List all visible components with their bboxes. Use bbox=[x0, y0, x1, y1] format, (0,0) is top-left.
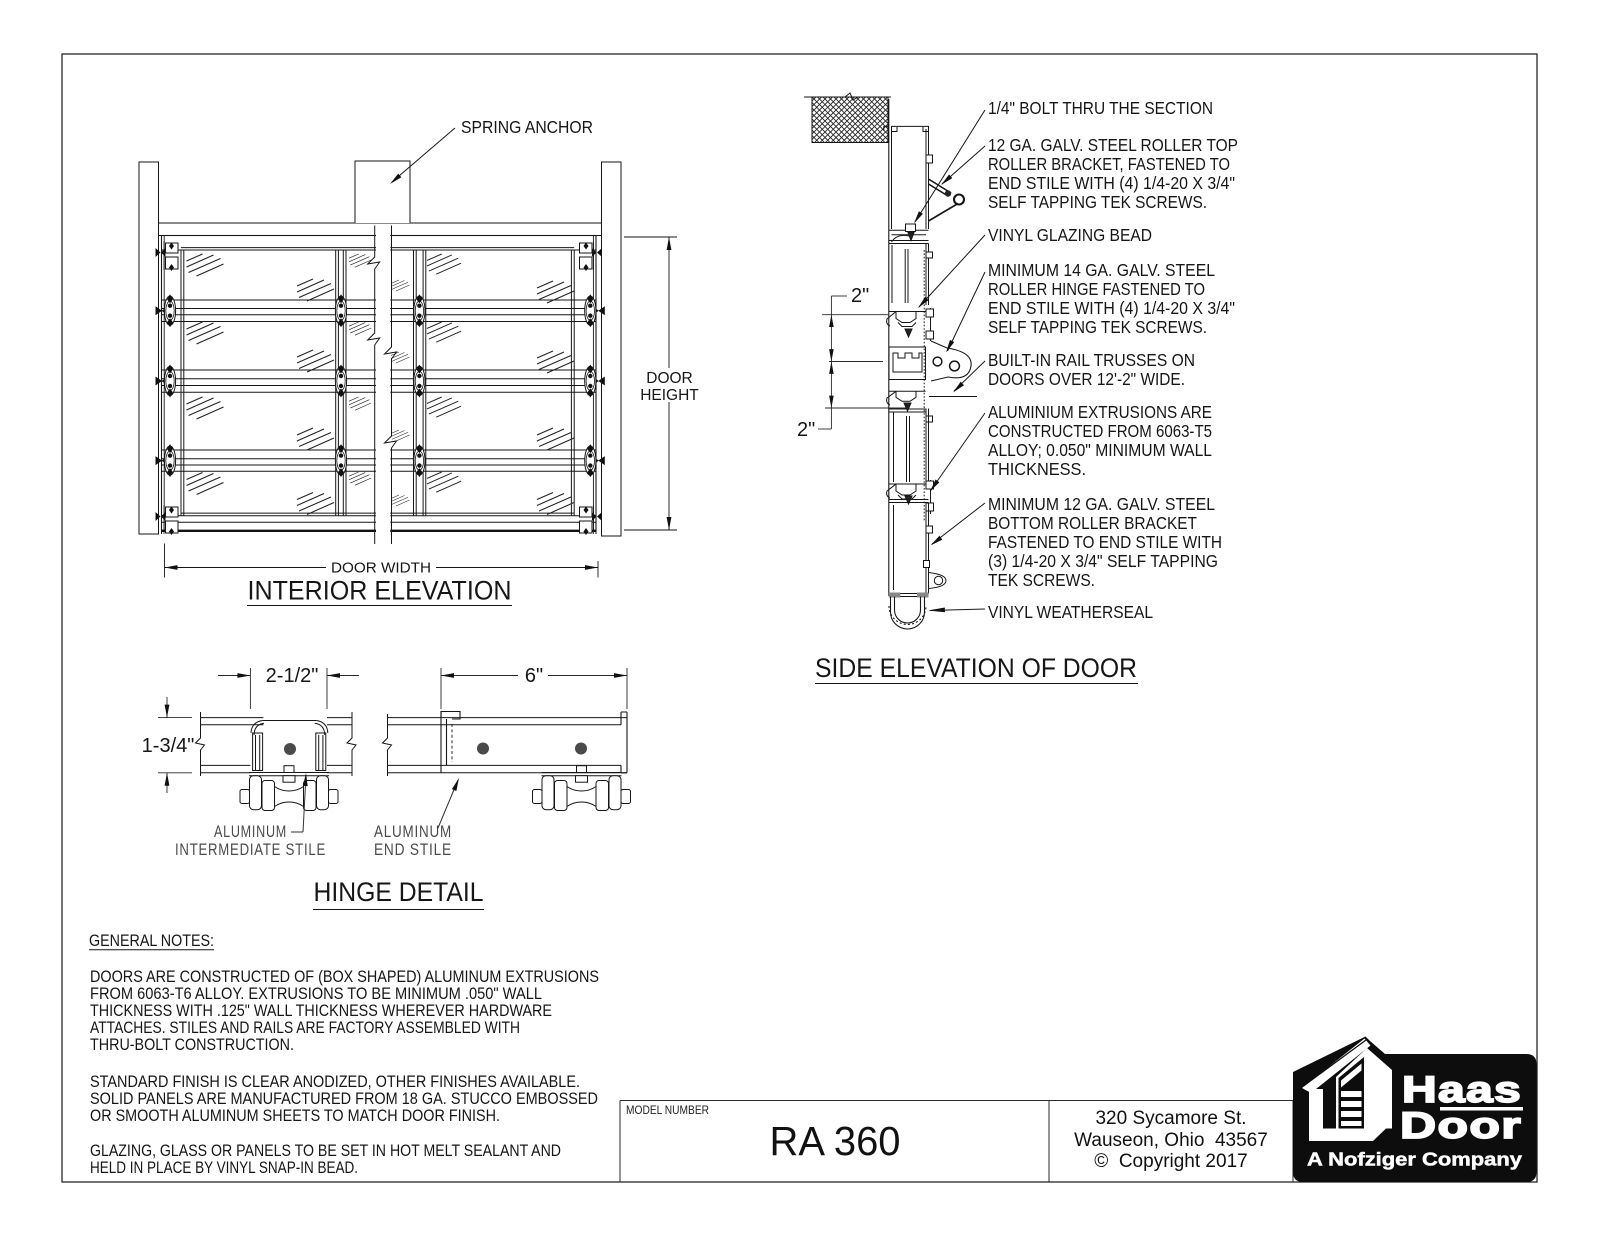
svg-text:Door: Door bbox=[1400, 1105, 1522, 1146]
svg-text:GENERAL NOTES:: GENERAL NOTES: bbox=[89, 932, 214, 950]
svg-text:HELD IN PLACE BY VINYL SNAP-IN: HELD IN PLACE BY VINYL SNAP-IN BEAD. bbox=[90, 1159, 358, 1177]
svg-text:TEK SCREWS.: TEK SCREWS. bbox=[988, 570, 1095, 590]
svg-text:MODEL NUMBER: MODEL NUMBER bbox=[626, 1105, 709, 1117]
svg-text:SELF TAPPING TEK SCREWS.: SELF TAPPING TEK SCREWS. bbox=[988, 192, 1207, 212]
svg-text:ALUMINUM: ALUMINUM bbox=[214, 822, 287, 841]
svg-text:SOLID PANELS ARE MANUFACTURED: SOLID PANELS ARE MANUFACTURED FROM 18 GA… bbox=[90, 1090, 598, 1108]
svg-text:FROM 6063-T6 ALLOY. EXTRUSION: FROM 6063-T6 ALLOY. EXTRUSIONS TO BE MIN… bbox=[90, 985, 542, 1003]
svg-text:HINGE DETAIL: HINGE DETAIL bbox=[314, 877, 484, 907]
svg-text:HEIGHT: HEIGHT bbox=[640, 387, 699, 404]
svg-text:2": 2" bbox=[797, 419, 815, 441]
svg-text:BUILT-IN RAIL TRUSSES ON: BUILT-IN RAIL TRUSSES ON bbox=[988, 350, 1195, 370]
svg-text:RA 360: RA 360 bbox=[770, 1118, 901, 1164]
svg-text:6": 6" bbox=[525, 665, 543, 687]
svg-text:Haas: Haas bbox=[1402, 1069, 1522, 1110]
svg-text:SELF TAPPING TEK SCREWS.: SELF TAPPING TEK SCREWS. bbox=[988, 317, 1207, 337]
svg-text:MINIMUM 12 GA. GALV. STEEL: MINIMUM 12 GA. GALV. STEEL bbox=[988, 494, 1215, 514]
svg-text:2": 2" bbox=[851, 285, 869, 307]
svg-text:END STILE: END STILE bbox=[374, 840, 452, 859]
svg-text:1/4" BOLT THRU THE SECTION: 1/4" BOLT THRU THE SECTION bbox=[988, 98, 1213, 118]
svg-text:VINYL WEATHERSEAL: VINYL WEATHERSEAL bbox=[988, 602, 1153, 622]
svg-text:OR SMOOTH ALUMINUM SHEETS TO M: OR SMOOTH ALUMINUM SHEETS TO MATCH DOOR … bbox=[90, 1107, 500, 1125]
svg-text:Wauseon, Ohio 43567: Wauseon, Ohio 43567 bbox=[1074, 1130, 1268, 1151]
svg-text:INTERMEDIATE STILE: INTERMEDIATE STILE bbox=[175, 840, 326, 859]
svg-text:CONSTRUCTED FROM 6063-T5: CONSTRUCTED FROM 6063-T5 bbox=[988, 421, 1212, 441]
svg-text:SPRING ANCHOR: SPRING ANCHOR bbox=[461, 117, 593, 137]
svg-text:THICKNESS.: THICKNESS. bbox=[988, 459, 1086, 479]
svg-text:1-3/4": 1-3/4" bbox=[142, 735, 195, 757]
svg-text:ROLLER BRACKET, FASTENED TO: ROLLER BRACKET, FASTENED TO bbox=[988, 154, 1230, 174]
svg-text:FASTENED TO END STILE WITH: FASTENED TO END STILE WITH bbox=[988, 532, 1222, 552]
svg-text:ATTACHES. STILES AND RAILS AR: ATTACHES. STILES AND RAILS ARE FACTORY A… bbox=[90, 1019, 520, 1037]
svg-text:320 Sycamore St.: 320 Sycamore St. bbox=[1095, 1108, 1246, 1129]
svg-text:DOOR WIDTH: DOOR WIDTH bbox=[331, 561, 431, 577]
svg-text:DOORS OVER 12'-2" WIDE.: DOORS OVER 12'-2" WIDE. bbox=[988, 369, 1185, 389]
svg-text:2-1/2": 2-1/2" bbox=[266, 665, 319, 687]
svg-text:ALLOY; 0.050" MINIMUM WALL: ALLOY; 0.050" MINIMUM WALL bbox=[988, 440, 1212, 460]
svg-text:ALUMINIUM EXTRUSIONS ARE: ALUMINIUM EXTRUSIONS ARE bbox=[988, 402, 1212, 422]
svg-text:THICKNESS WITH .125" WALL THIC: THICKNESS WITH .125" WALL THICKNESS WHER… bbox=[90, 1002, 552, 1020]
svg-text:STANDARD FINISH IS CLEAR ANODI: STANDARD FINISH IS CLEAR ANODIZED, OTHER… bbox=[90, 1073, 580, 1091]
svg-text:(3) 1/4-20 X 3/4" SELF TAPPING: (3) 1/4-20 X 3/4" SELF TAPPING bbox=[988, 551, 1218, 571]
svg-text:© Copyright 2017: © Copyright 2017 bbox=[1094, 1151, 1247, 1172]
svg-text:ALUMINUM: ALUMINUM bbox=[374, 822, 452, 841]
svg-text:BOTTOM ROLLER BRACKET: BOTTOM ROLLER BRACKET bbox=[988, 513, 1197, 533]
svg-text:MINIMUM 14 GA. GALV. STEEL: MINIMUM 14 GA. GALV. STEEL bbox=[988, 260, 1215, 280]
svg-text:12 GA. GALV. STEEL ROLLER TOP: 12 GA. GALV. STEEL ROLLER TOP bbox=[988, 135, 1238, 155]
svg-text:VINYL GLAZING BEAD: VINYL GLAZING BEAD bbox=[988, 225, 1152, 245]
svg-text:DOOR: DOOR bbox=[646, 370, 693, 387]
svg-text:GLAZING, GLASS OR PANELS TO BE: GLAZING, GLASS OR PANELS TO BE SET IN HO… bbox=[90, 1142, 561, 1160]
svg-text:A Nofziger Company: A Nofziger Company bbox=[1307, 1150, 1522, 1170]
svg-text:DOORS ARE CONSTRUCTED OF (BOX: DOORS ARE CONSTRUCTED OF (BOX SHAPED) AL… bbox=[90, 968, 599, 986]
svg-text:INTERIOR ELEVATION: INTERIOR ELEVATION bbox=[248, 576, 512, 606]
svg-text:END STILE WITH (4) 1/4-20 X 3/: END STILE WITH (4) 1/4-20 X 3/4" bbox=[988, 298, 1235, 318]
svg-text:SIDE ELEVATION OF DOOR: SIDE ELEVATION OF DOOR bbox=[815, 653, 1137, 683]
svg-text:ROLLER HINGE FASTENED TO: ROLLER HINGE FASTENED TO bbox=[988, 279, 1205, 299]
svg-text:THRU-BOLT CONSTRUCTION.: THRU-BOLT CONSTRUCTION. bbox=[90, 1036, 294, 1054]
svg-text:END STILE WITH (4) 1/4-20 X 3/: END STILE WITH (4) 1/4-20 X 3/4" bbox=[988, 173, 1235, 193]
